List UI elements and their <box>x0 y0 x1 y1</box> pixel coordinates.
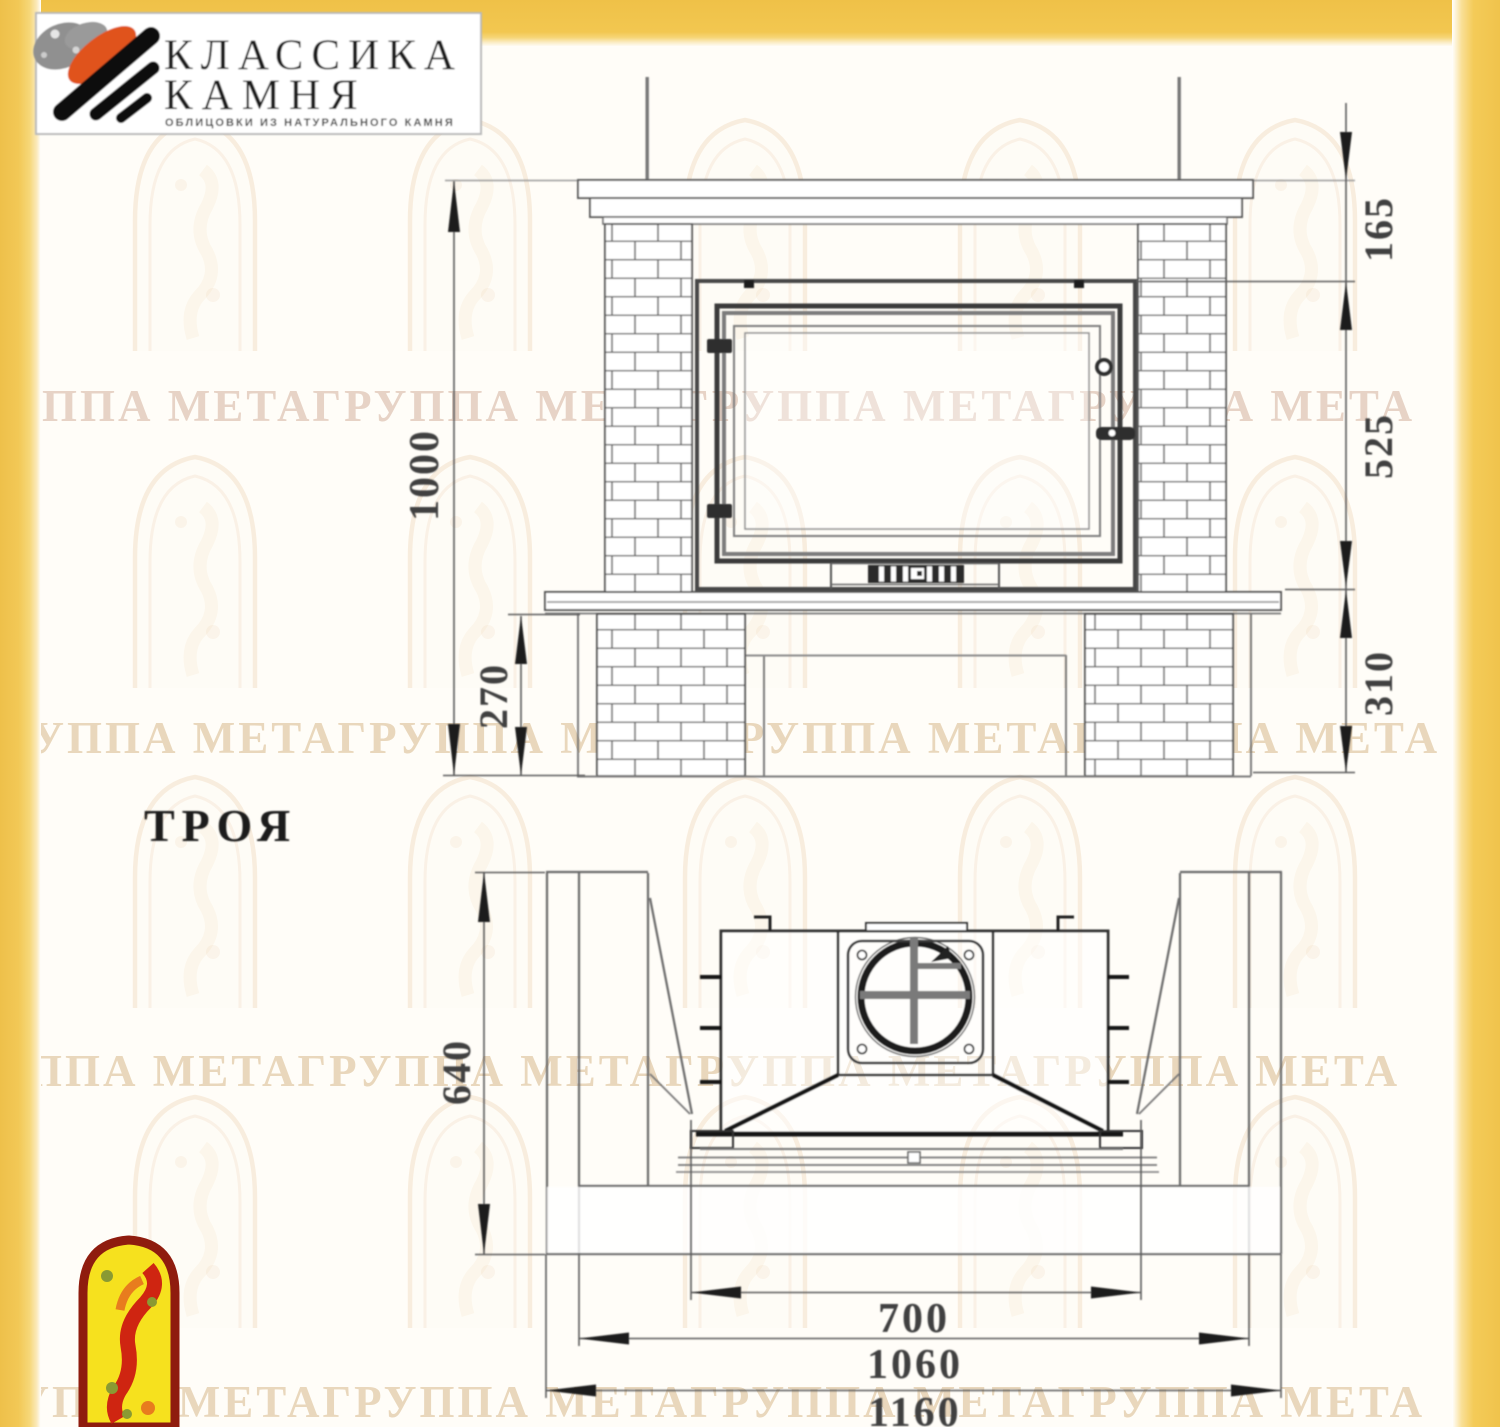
svg-text:310: 310 <box>1356 650 1401 716</box>
svg-text:270: 270 <box>471 663 516 729</box>
svg-text:ГРУППА МЕТАГРУППА МЕТАГРУППА М: ГРУППА МЕТАГРУППА МЕТАГРУППА МЕТАГРУППА … <box>0 1046 1400 1096</box>
svg-text:525: 525 <box>1356 413 1401 479</box>
svg-text:КАМНЯ: КАМНЯ <box>164 72 367 119</box>
svg-text:640: 640 <box>434 1039 479 1105</box>
svg-text:ГРУППА МЕТАГРУППА МЕТАГРУППА М: ГРУППА МЕТАГРУППА МЕТАГРУППА МЕТАГРУППА … <box>0 1377 1425 1427</box>
svg-text:ТРОЯ: ТРОЯ <box>144 800 297 851</box>
svg-text:1000: 1000 <box>402 429 448 521</box>
svg-text:1160: 1160 <box>868 1390 962 1427</box>
svg-text:1060: 1060 <box>867 1342 963 1388</box>
svg-text:700: 700 <box>878 1296 950 1342</box>
svg-text:ОБЛИЦОВКИ ИЗ НАТУРАЛЬНОГО КАМН: ОБЛИЦОВКИ ИЗ НАТУРАЛЬНОГО КАМНЯ <box>165 117 455 129</box>
svg-text:165: 165 <box>1356 196 1401 262</box>
